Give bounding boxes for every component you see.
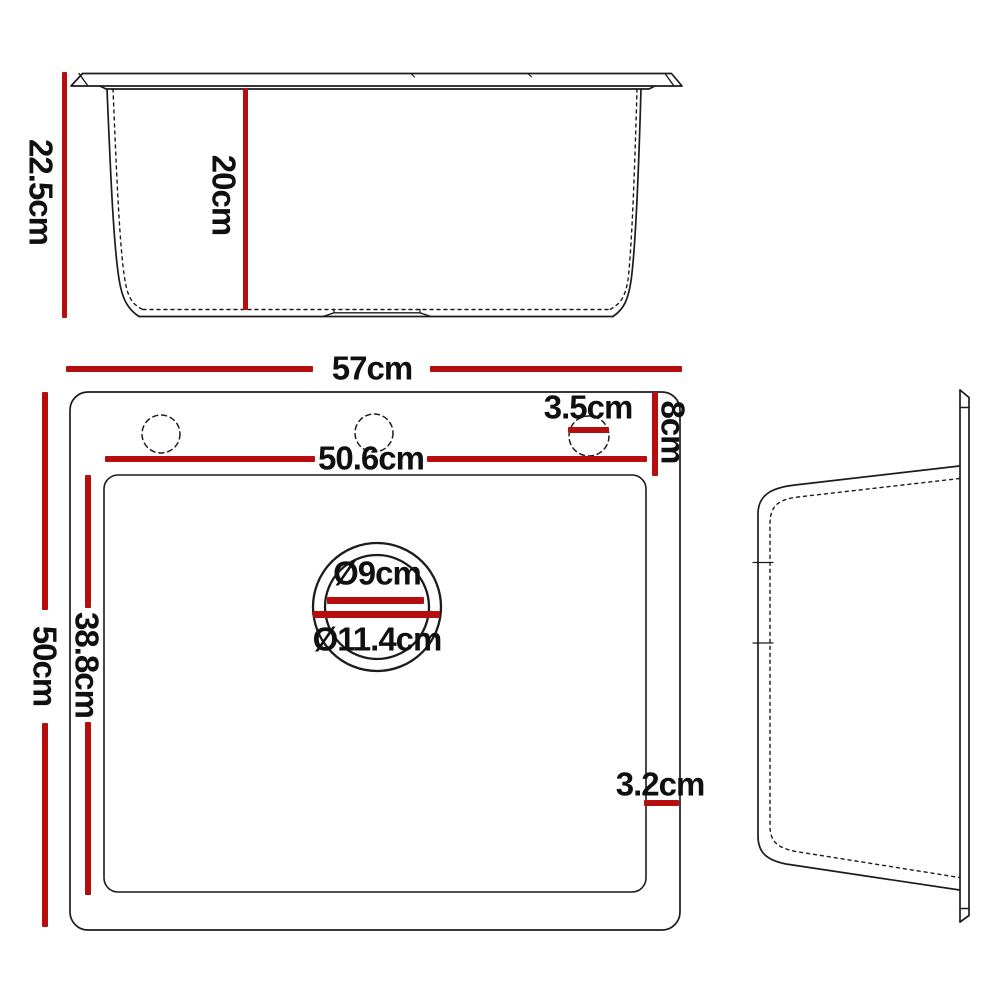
dim-label-overall-height: 22.5cm	[25, 139, 58, 245]
dim-line-overall-depth-bottom	[42, 723, 48, 927]
dim-line-bowl-depth-bottom	[85, 722, 91, 895]
dim-line-overall-width-left	[66, 366, 313, 372]
diagram-lineart	[0, 0, 1000, 1000]
dim-line-bowl-width-right	[427, 456, 647, 462]
dim-label-deck-height: 8cm	[657, 400, 690, 463]
sink-dimension-diagram: 22.5cm 20cm 57cm 50cm 50.6cm 38.8cm 3.5c…	[0, 0, 1000, 1000]
dim-line-overall-depth-top	[42, 392, 48, 610]
dim-label-right-gap: 3.2cm	[616, 768, 705, 801]
dim-label-bowl-depth-front: 20cm	[208, 155, 241, 235]
dim-line-bowl-width-left	[105, 456, 315, 462]
dim-label-bowl-width: 50.6cm	[318, 442, 424, 475]
dim-line-drain-inner	[327, 597, 424, 604]
dim-label-overall-depth: 50cm	[29, 626, 62, 706]
dim-line-drain-outer	[313, 611, 440, 618]
dim-label-bowl-depth: 38.8cm	[71, 612, 104, 718]
dim-line-bowl-depth-front	[243, 88, 248, 310]
dim-line-faucet-hole	[568, 427, 609, 433]
dim-line-overall-height	[62, 72, 67, 318]
dim-label-faucet-hole: 3.5cm	[544, 391, 633, 424]
dim-label-drain-outer: Ø11.4cm	[313, 623, 442, 656]
dim-line-bowl-depth-top	[85, 475, 91, 608]
side-view-drawing	[753, 390, 969, 922]
front-view-drawing	[71, 74, 682, 317]
dim-line-overall-width-right	[430, 366, 682, 372]
dim-label-drain-inner: Ø9cm	[333, 557, 421, 590]
dim-label-overall-width: 57cm	[332, 352, 412, 385]
